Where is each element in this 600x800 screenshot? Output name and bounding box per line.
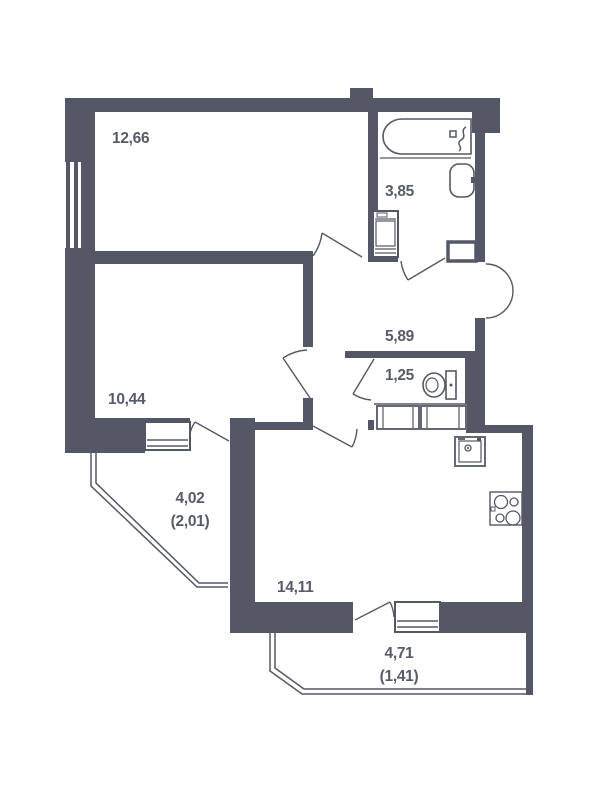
wall-sink-icon — [450, 164, 476, 197]
wall — [526, 633, 533, 695]
wall — [440, 602, 522, 633]
bathtub-icon — [380, 119, 471, 158]
wall — [522, 425, 533, 633]
bedroom-area-label: 10,44 — [108, 391, 146, 408]
bathroom-area-label: 3,85 — [385, 183, 415, 200]
kitchen-area-label: 14,11 — [277, 579, 314, 596]
hallway-area-label: 5,89 — [385, 328, 415, 345]
loggia-left-area-label: 4,02 — [176, 490, 205, 507]
wall — [65, 112, 95, 162]
wall — [466, 405, 485, 433]
washing-machine-icon — [373, 211, 398, 257]
wall — [81, 162, 95, 248]
balcony-window-icon — [145, 422, 190, 450]
wc-door — [353, 359, 374, 400]
floor-plan: 12,66 3,85 5,89 1,25 10,44 4,02 (2,01) 1… — [0, 0, 600, 800]
loggia-left-reduced-label: (2,01) — [171, 513, 210, 530]
vent-shaft-icon — [448, 242, 476, 261]
living-room-area-label: 12,66 — [112, 130, 150, 147]
wall — [65, 428, 145, 453]
stove-icon — [490, 492, 522, 525]
toilet-icon — [423, 371, 456, 399]
wall — [303, 264, 313, 347]
entrance-door — [486, 264, 513, 318]
wall — [65, 251, 313, 264]
loggia-left-door — [190, 422, 229, 441]
wall — [230, 602, 353, 633]
living-room-door — [313, 233, 362, 257]
loggia-bottom-area-label: 4,71 — [385, 645, 415, 662]
bathroom-door — [401, 258, 445, 280]
wall — [475, 112, 485, 262]
wall — [65, 98, 500, 112]
balcony-window-icon — [395, 602, 440, 632]
wall — [465, 351, 475, 407]
wardrobe-icon — [374, 404, 467, 430]
wall — [350, 88, 373, 98]
bath-faucet-icon — [450, 127, 466, 151]
kitchen-door — [313, 426, 357, 447]
loggia-bottom-door — [355, 602, 394, 620]
kitchen-sink-icon — [455, 437, 485, 466]
bedroom-door — [283, 350, 310, 398]
window-icon — [66, 162, 78, 248]
loggia-bottom-reduced-label: (1,41) — [380, 668, 419, 685]
wc-area-label: 1,25 — [385, 367, 415, 384]
wall — [230, 418, 255, 633]
wall — [345, 351, 475, 358]
